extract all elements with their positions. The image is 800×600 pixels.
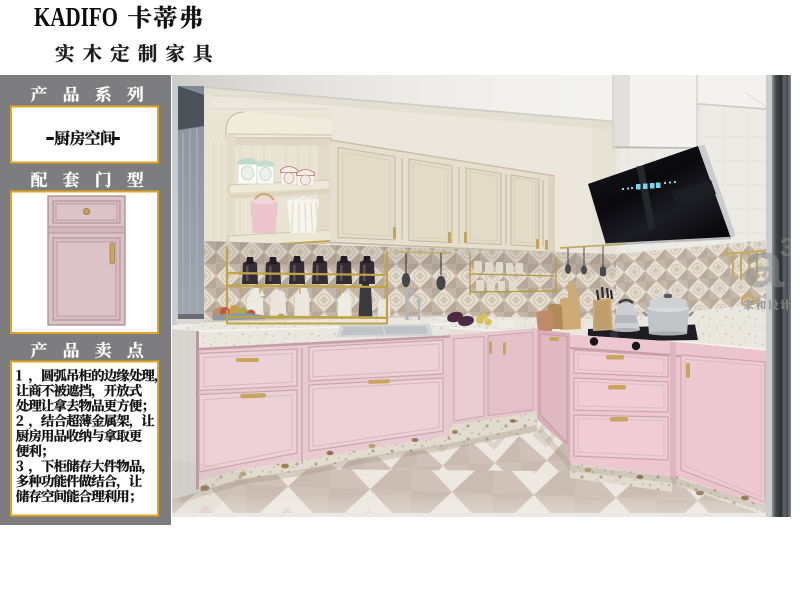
svg-text:a: a <box>743 229 784 301</box>
svg-text:KADIFO: KADIFO <box>34 1 118 32</box>
